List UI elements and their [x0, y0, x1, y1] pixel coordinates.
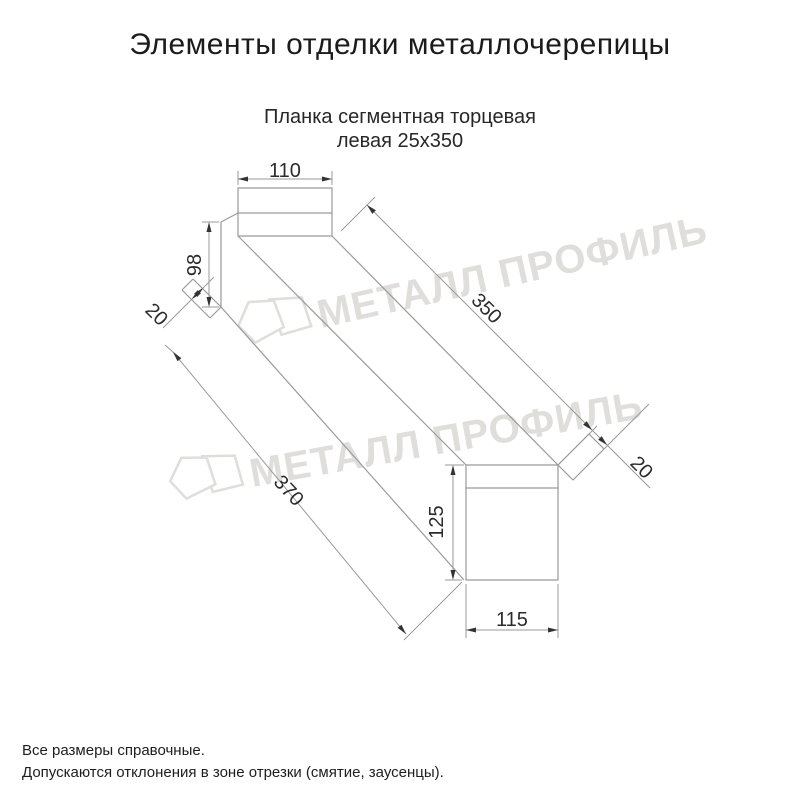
watermark-upper: МЕТАЛЛ ПРОФИЛЬ — [234, 202, 712, 354]
dim-label-left-fold: 20 — [141, 299, 172, 330]
watermark-text: МЕТАЛЛ ПРОФИЛЬ — [313, 208, 711, 337]
watermark-lower: МЕТАЛЛ ПРОФИЛЬ — [167, 377, 647, 509]
dim-label-right-fold: 20 — [626, 452, 657, 483]
drawing-page: Элементы отделки металлочерепицы Планка … — [0, 0, 800, 800]
footer-notes: Все размеры справочные. Допускаются откл… — [22, 740, 762, 784]
dim-label-left-end-height: 98 — [184, 254, 206, 276]
dim-label-right-end-height: 125 — [426, 505, 448, 538]
footer-note-2: Допускаются отклонения в зоне отрезки (с… — [22, 762, 762, 784]
technical-drawing: МЕТАЛЛ ПРОФИЛЬ МЕТАЛЛ ПРОФИЛЬ — [0, 0, 800, 800]
footer-note-1: Все размеры справочные. — [22, 740, 762, 762]
dim-label-top-flange-width: 110 — [269, 160, 301, 182]
dim-label-bottom-width: 115 — [496, 609, 528, 631]
watermark-text: МЕТАЛЛ ПРОФИЛЬ — [246, 383, 646, 495]
